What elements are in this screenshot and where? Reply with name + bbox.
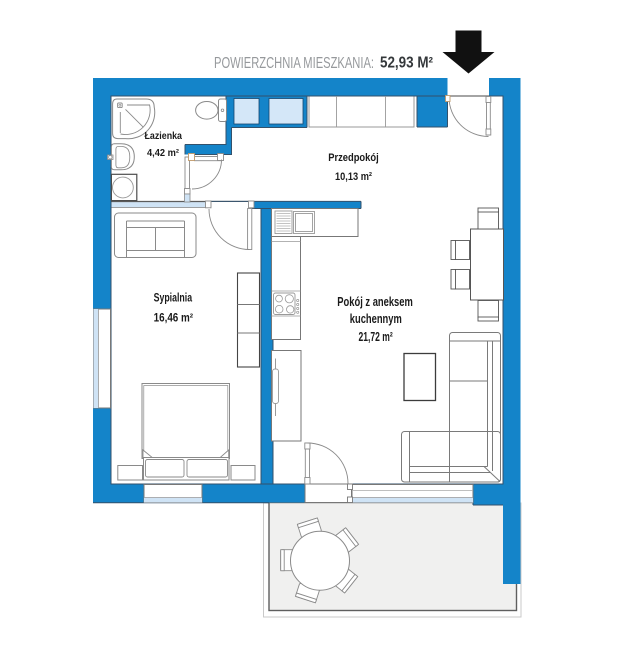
svg-text:21,72 m²: 21,72 m² — [359, 329, 393, 344]
svg-text:10,13 m²: 10,13 m² — [335, 171, 372, 183]
svg-text:POWIERZCHNIA MIESZKANIA:: POWIERZCHNIA MIESZKANIA: — [214, 55, 374, 72]
svg-text:4,42 m²: 4,42 m² — [147, 148, 180, 159]
svg-text:Przedpokój: Przedpokój — [328, 152, 379, 164]
svg-text:Łazienka: Łazienka — [145, 131, 183, 142]
svg-text:16,46 m²: 16,46 m² — [154, 312, 194, 324]
svg-text:Sypialnia: Sypialnia — [154, 292, 193, 304]
svg-text:kuchennym: kuchennym — [350, 311, 402, 326]
svg-text:52,93 M²: 52,93 M² — [380, 55, 433, 72]
svg-text:Pokój z aneksem: Pokój z aneksem — [337, 294, 413, 309]
